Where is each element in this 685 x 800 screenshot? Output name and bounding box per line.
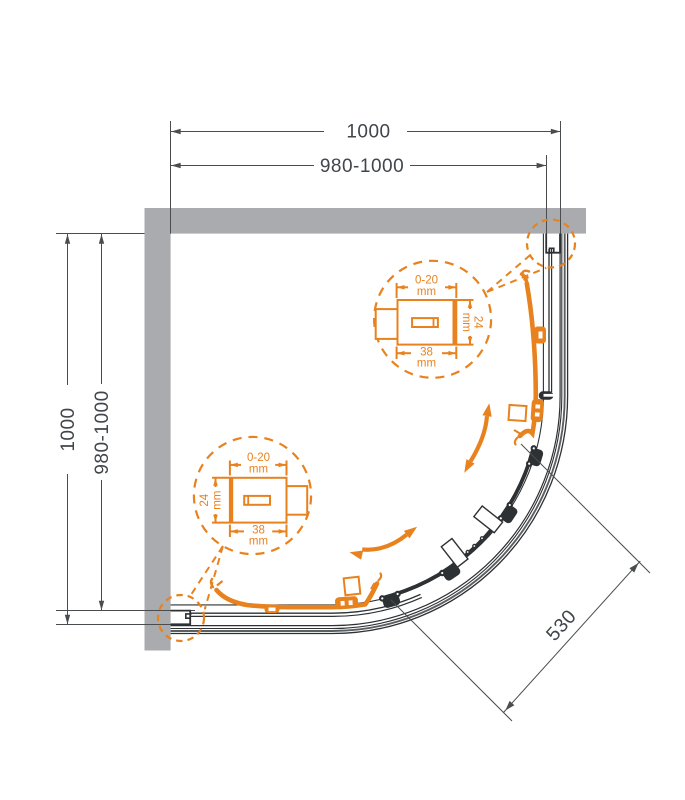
- svg-text:0-20: 0-20: [415, 275, 438, 287]
- svg-text:24: 24: [199, 493, 211, 506]
- svg-text:1000: 1000: [58, 407, 79, 451]
- svg-text:0-20: 0-20: [247, 452, 270, 464]
- svg-text:24: 24: [472, 316, 484, 329]
- svg-text:980-1000: 980-1000: [320, 156, 404, 177]
- svg-text:mm: mm: [417, 286, 436, 298]
- svg-text:mm: mm: [417, 358, 436, 370]
- svg-text:1000: 1000: [346, 122, 390, 143]
- svg-text:980-1000: 980-1000: [92, 390, 113, 474]
- svg-text:mm: mm: [249, 464, 268, 476]
- svg-text:mm: mm: [460, 313, 472, 332]
- svg-text:mm: mm: [249, 536, 268, 548]
- svg-text:mm: mm: [212, 491, 224, 510]
